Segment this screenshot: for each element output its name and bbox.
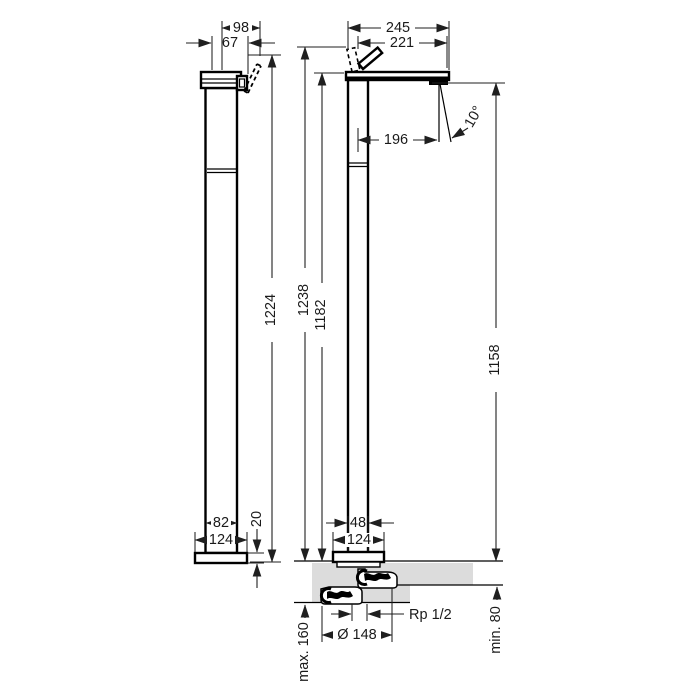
dimension-angle-10: 10° bbox=[452, 104, 486, 138]
dim-label-dia148: Ø 148 bbox=[337, 627, 377, 643]
right-base-plate bbox=[333, 552, 384, 562]
dim-label-min80: min. 80 bbox=[488, 606, 504, 654]
dimension-max-160: max. 160 bbox=[296, 605, 312, 682]
right-handle-lever-dashed bbox=[347, 48, 360, 72]
right-handle-lever bbox=[359, 48, 383, 69]
dimension-rp-half: Rp 1/2 bbox=[331, 607, 452, 623]
dim-label-67: 67 bbox=[222, 35, 238, 51]
dim-label-1224: 1224 bbox=[263, 294, 279, 326]
left-base-plate bbox=[195, 553, 247, 563]
dim-label-196: 196 bbox=[384, 132, 408, 148]
dimension-20: 20 bbox=[247, 511, 265, 588]
dim-label-124-left: 124 bbox=[209, 532, 233, 548]
dim-label-1158: 1158 bbox=[487, 344, 503, 375]
technical-drawing-canvas: 98 67 1224 82 124 20 bbox=[0, 0, 700, 700]
dim-label-98: 98 bbox=[233, 20, 249, 36]
dimension-1224: 1224 bbox=[248, 55, 281, 562]
dim-label-1238: 1238 bbox=[296, 284, 312, 316]
dim-label-max160: max. 160 bbox=[296, 622, 312, 682]
dimension-196: 196 bbox=[358, 128, 437, 152]
right-base-subplate bbox=[337, 562, 380, 567]
faucet-dimension-diagram: 98 67 1224 82 124 20 bbox=[0, 0, 700, 700]
dimension-1182: 1182 bbox=[313, 73, 344, 561]
dim-label-10deg: 10° bbox=[462, 104, 487, 131]
left-spout-head bbox=[201, 72, 241, 88]
dim-label-20: 20 bbox=[249, 511, 265, 527]
dim-label-124-right: 124 bbox=[347, 532, 371, 548]
floor-slab-thin bbox=[410, 563, 473, 585]
dim-label-48: 48 bbox=[350, 515, 366, 531]
left-column bbox=[206, 88, 238, 553]
dimension-min-80: min. 80 bbox=[488, 587, 504, 654]
dim-label-rp: Rp 1/2 bbox=[409, 607, 452, 623]
stream-angled-line bbox=[440, 84, 451, 142]
dim-label-82: 82 bbox=[213, 515, 229, 531]
dim-label-221: 221 bbox=[390, 35, 414, 51]
dim-label-1182: 1182 bbox=[313, 299, 329, 330]
right-view-faucet bbox=[333, 48, 451, 567]
dimension-1158: 1158 bbox=[432, 83, 505, 561]
dim-label-245: 245 bbox=[386, 20, 410, 36]
left-view-faucet bbox=[195, 64, 261, 563]
